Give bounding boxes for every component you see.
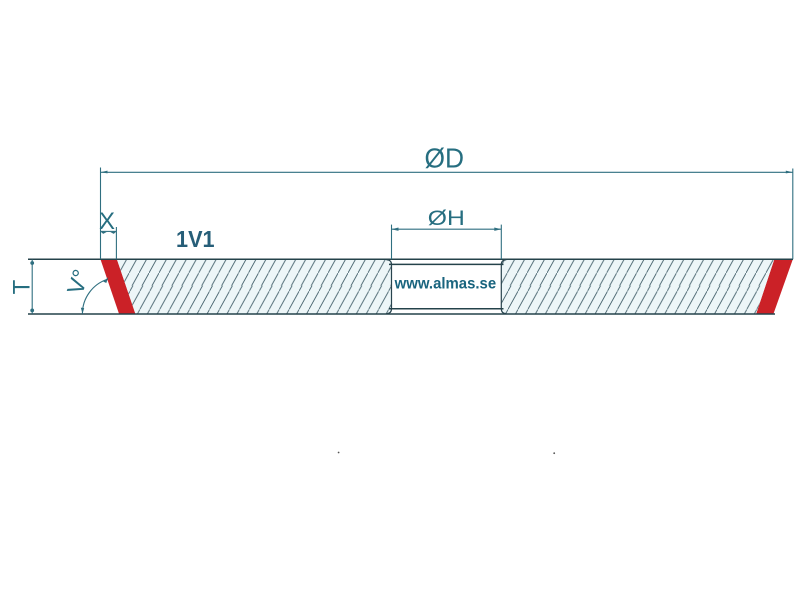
svg-text:T: T bbox=[8, 279, 35, 294]
svg-text:ØD: ØD bbox=[425, 143, 465, 174]
svg-text:1V1: 1V1 bbox=[176, 226, 215, 252]
svg-text:ØH: ØH bbox=[428, 206, 465, 230]
svg-text:www.almas.se: www.almas.se bbox=[394, 275, 497, 292]
svg-text:X: X bbox=[99, 208, 115, 235]
